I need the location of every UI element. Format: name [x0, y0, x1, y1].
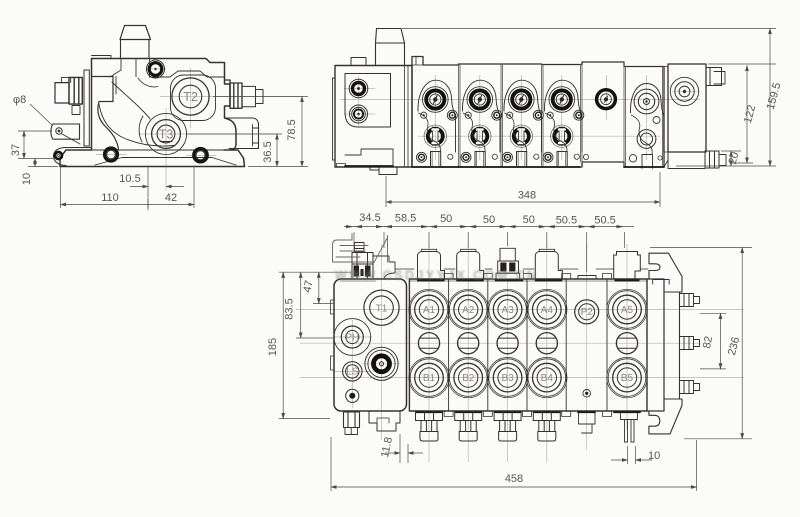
svg-text:B2: B2: [462, 373, 475, 384]
svg-text:LS: LS: [346, 367, 359, 378]
svg-text:B3: B3: [501, 373, 514, 384]
svg-text:10: 10: [648, 450, 660, 462]
svg-text:T1: T1: [376, 304, 388, 315]
svg-text:50: 50: [440, 213, 452, 225]
svg-text:50.5: 50.5: [594, 215, 615, 227]
svg-text:37: 37: [10, 144, 22, 156]
svg-text:A5: A5: [621, 305, 634, 316]
svg-text:36.5: 36.5: [262, 141, 274, 162]
svg-text:82: 82: [701, 335, 715, 349]
svg-text:50.5: 50.5: [556, 215, 577, 227]
svg-text:T3: T3: [159, 128, 174, 142]
svg-text:50: 50: [523, 214, 535, 226]
svg-text:PH: PH: [345, 332, 359, 343]
svg-text:348: 348: [518, 190, 536, 202]
svg-text:58.5: 58.5: [395, 213, 416, 225]
svg-text:10.5: 10.5: [119, 173, 140, 185]
svg-text:458: 458: [505, 473, 523, 485]
svg-text:A1: A1: [423, 305, 436, 316]
svg-text:T2: T2: [183, 90, 198, 104]
svg-text:110: 110: [101, 192, 119, 204]
svg-text:A3: A3: [501, 305, 514, 316]
svg-text:B5: B5: [621, 373, 634, 384]
svg-text:34.5: 34.5: [359, 212, 380, 224]
svg-text:B1: B1: [423, 373, 436, 384]
svg-text:A4: A4: [541, 305, 554, 316]
svg-text:78.5: 78.5: [286, 119, 298, 140]
svg-text:φ8: φ8: [13, 94, 26, 106]
svg-text:42: 42: [165, 192, 177, 204]
svg-text:WWW.CSDJYYJX.COM.CN: WWW.CSDJYYJX.COM.CN: [335, 269, 538, 283]
svg-text:B4: B4: [541, 373, 554, 384]
svg-text:P2: P2: [581, 307, 594, 318]
svg-text:A2: A2: [462, 305, 475, 316]
svg-text:185: 185: [267, 338, 279, 356]
svg-text:10: 10: [21, 173, 33, 185]
svg-text:47: 47: [302, 279, 316, 293]
svg-text:83.5: 83.5: [284, 298, 296, 319]
svg-text:50: 50: [483, 214, 495, 226]
